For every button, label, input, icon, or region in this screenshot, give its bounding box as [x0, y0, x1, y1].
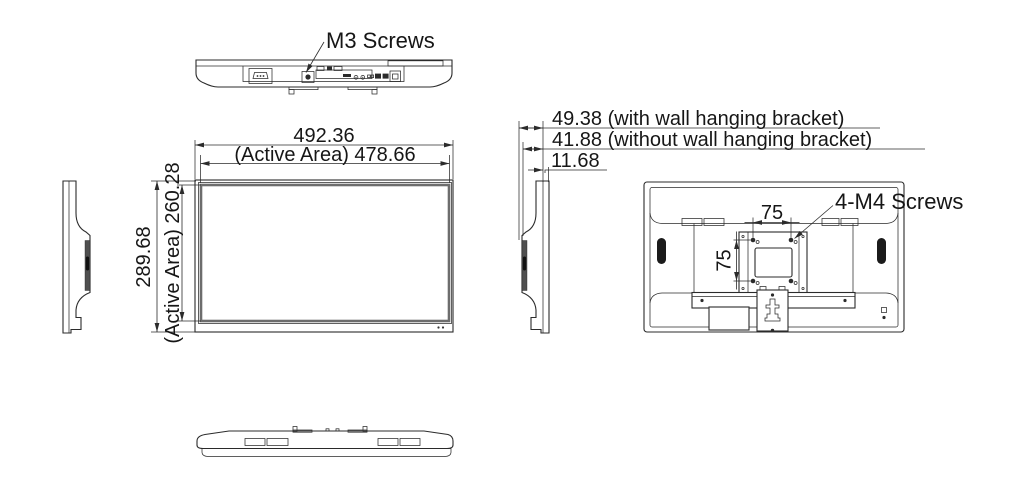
vesa-screw-icon: [789, 238, 794, 243]
label-box: [709, 307, 749, 330]
mounting-feet: [289, 87, 377, 94]
drawing-canvas: M3 Screws 492.36 (Active Area) 478.66 28…: [0, 0, 1024, 480]
dim-active-width: (Active Area) 478.66: [234, 144, 415, 166]
bezel-edge: [199, 183, 452, 324]
m4-screws-label: 4-M4 Screws: [835, 189, 963, 214]
vesa-screw-icon: [751, 279, 756, 284]
rail-screw-icon: [843, 299, 846, 302]
bottom-view: [197, 427, 453, 457]
front-outline: [195, 180, 453, 332]
usb-port-icon: [383, 74, 389, 79]
speaker-left: [657, 238, 666, 264]
vent-slots: [245, 439, 420, 446]
dimension-diagram: M3 Screws 492.36 (Active Area) 478.66 28…: [0, 0, 1024, 480]
bottom-lip: [202, 449, 451, 457]
security-slot: [882, 308, 887, 320]
vesa-screw-icon: [789, 279, 794, 284]
m3-screw-icon: [305, 74, 310, 79]
vesa-screw-icon: [751, 238, 756, 243]
led-indicator-dot: [442, 326, 444, 328]
active-area: [201, 185, 449, 321]
left-side-view: [63, 181, 90, 333]
ir-sensor-dot: [437, 326, 439, 328]
dim-vesa-height: 75: [714, 249, 736, 271]
right-side-view: [522, 181, 549, 333]
dim-active-height: (Active Area) 260.28: [162, 162, 184, 343]
usb-port-icon: [343, 74, 351, 77]
dim-depth-without-bracket: 41.88 (without wall hanging bracket): [552, 129, 872, 151]
top-view: M3 Screws: [196, 28, 452, 94]
back-view: 75 75 4-M4 Screws: [644, 182, 963, 332]
usb-port-icon: [375, 74, 381, 79]
lan-port-icon: [390, 71, 401, 82]
dim-overall-height: 289.68: [133, 226, 155, 287]
front-view: [195, 180, 453, 332]
front-view-dimensions: 492.36 (Active Area) 478.66 289.68 (Acti…: [133, 125, 453, 344]
m4-leader-line: [795, 206, 834, 239]
dim-panel-depth: 11.68: [551, 150, 600, 172]
top-view-outline: [196, 60, 452, 87]
speaker-right: [877, 238, 886, 264]
dim-vesa-width: 75: [761, 202, 783, 224]
m3-screw-mount: [302, 72, 314, 83]
extension-lines: [151, 140, 453, 332]
m3-screws-label: M3 Screws: [326, 28, 435, 53]
depth-dimensions: 49.38 (with wall hanging bracket) 41.88 …: [519, 108, 925, 240]
hanging-bracket: [757, 287, 788, 333]
m3-leader-line: [306, 42, 324, 73]
rail-screw-icon: [700, 299, 703, 302]
dim-depth-with-bracket: 49.38 (with wall hanging bracket): [552, 108, 844, 130]
top-rear-panel: [388, 61, 443, 66]
vesa-plate: [739, 232, 807, 293]
